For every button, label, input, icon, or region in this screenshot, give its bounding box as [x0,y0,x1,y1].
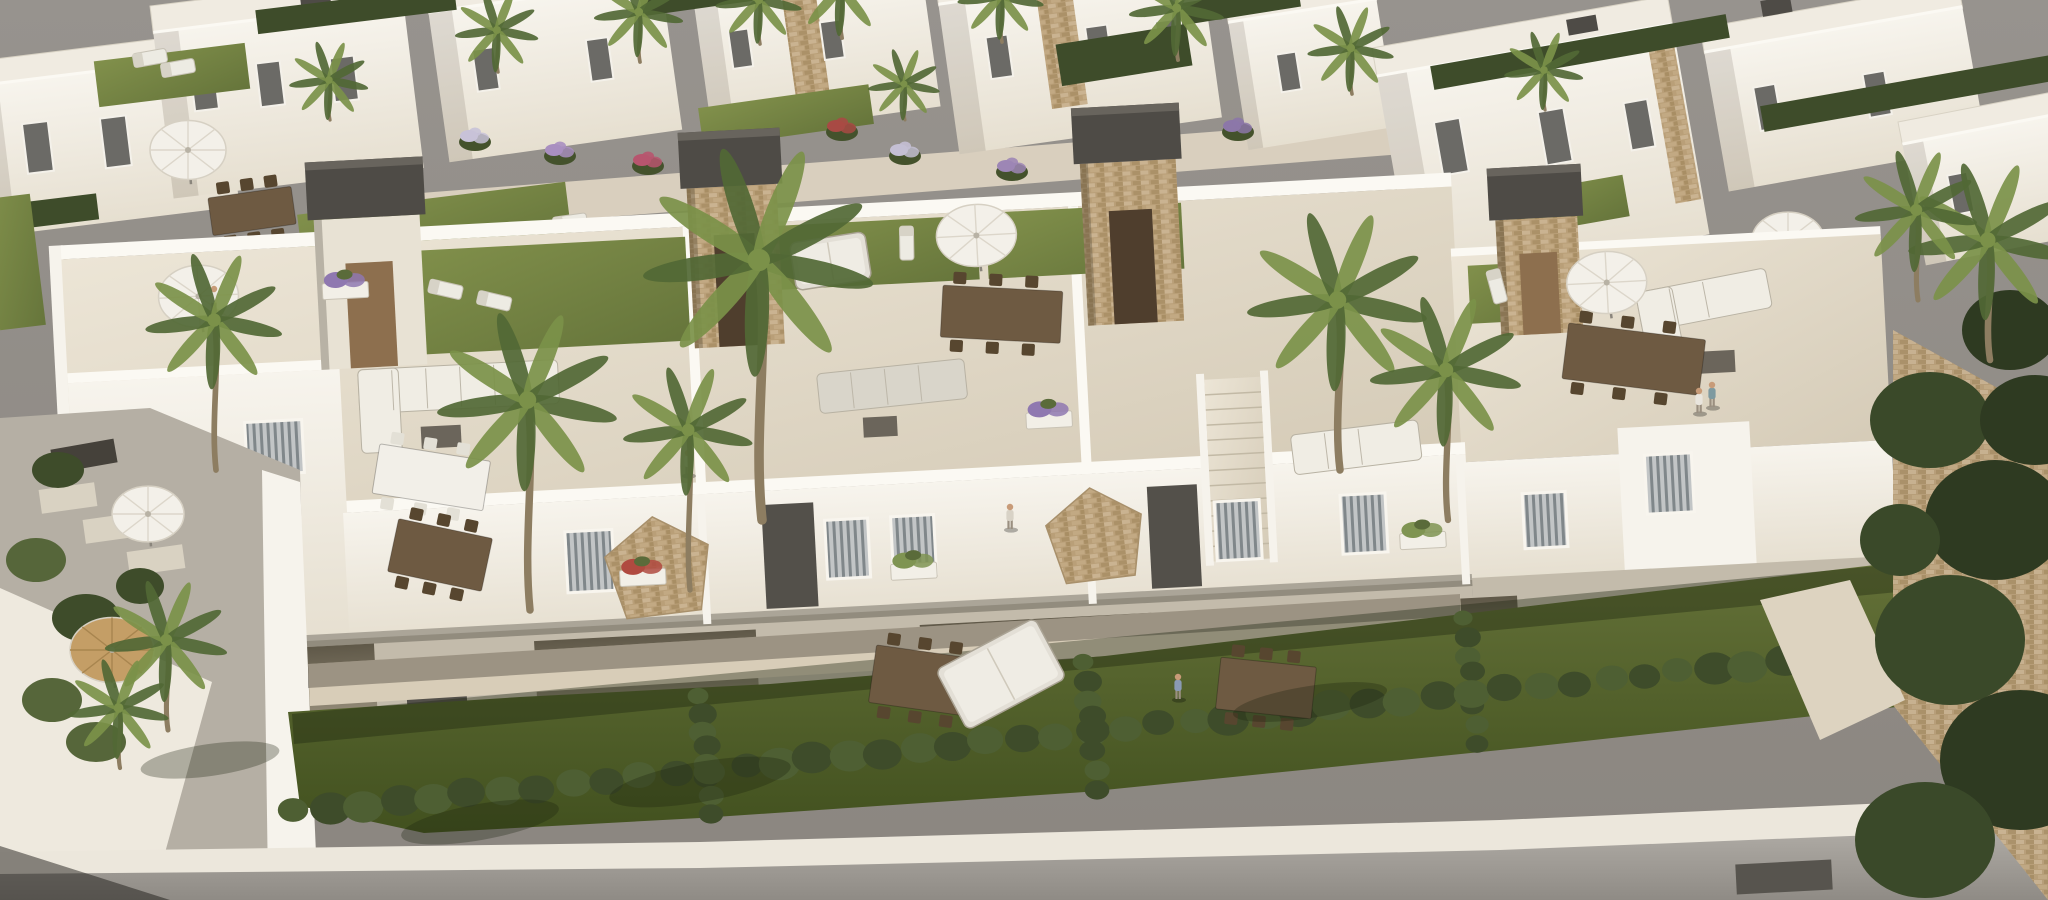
palm-crown [1910,204,1922,216]
palm-crown [634,8,643,17]
hedge-bush [1487,674,1522,701]
bush-bloom [899,142,911,151]
chair [918,637,933,651]
window-louvers [826,520,869,578]
hedge-bush [1085,760,1110,780]
parasol-hub [145,511,151,517]
person-leg [1011,520,1013,529]
palm-crown [1439,363,1454,378]
person-head [1175,674,1181,680]
hedge-bush [1466,715,1489,733]
hedge-bush [1073,654,1094,670]
person-leg [1179,690,1181,699]
shrub [32,452,84,488]
person-leg [1713,398,1715,407]
person-leg [1709,398,1711,407]
person-leg [1700,404,1702,413]
hedge-bush [1109,716,1142,742]
sun-lounger [899,226,914,260]
palm-crown [519,391,537,409]
lounger-back [899,226,913,236]
chair [985,341,999,354]
hedge-bush [1074,671,1102,693]
stair-tower [1487,164,1590,337]
chair [887,632,902,646]
hedge-bush [1421,681,1458,710]
person-torso [1708,388,1715,399]
person-head [1696,388,1702,394]
louver-window [1643,451,1696,516]
hedge-bush [967,726,1003,754]
hedge-bush [1466,735,1489,753]
chair [876,706,891,720]
stair-tower [1071,103,1190,326]
chair [949,641,964,655]
hedge-bush [934,732,971,761]
palm-crown [1329,291,1347,309]
person-head [1007,504,1013,510]
palm-crown [1172,3,1181,12]
palm-crown [493,26,501,34]
palm-crown [1347,44,1355,52]
person-torso [1174,680,1181,691]
chair [953,272,967,285]
villa-window [100,115,132,168]
chair [1621,315,1635,328]
person-leg [1175,690,1177,699]
hedge-bush [863,739,902,769]
bush-bloom [1232,118,1244,127]
person-torso [1006,510,1013,521]
hedge-bush [694,735,721,756]
chair [390,432,405,446]
chair [1662,321,1676,334]
hedge-bush [343,791,383,822]
window-louvers [1646,454,1693,512]
boundary-tree [1855,782,1995,898]
person-leg [1696,404,1698,413]
chair [950,340,964,353]
parked-object [1735,860,1832,895]
hedge-bush [1038,724,1072,751]
chair [239,178,254,192]
render-canvas [0,0,2048,900]
hedge-bush [1005,725,1040,753]
hedge-bush [518,775,554,803]
architectural-render [0,0,2048,900]
hedge-bush [1142,710,1174,735]
bush-bloom [1006,158,1018,167]
hedge-bush [1453,611,1472,626]
rooftop-lawn [387,237,690,356]
palm-crown [207,313,220,326]
hedge-bush [1629,664,1660,688]
villa-window [728,28,753,68]
hedge-bush [792,742,833,774]
chair [423,437,438,451]
glass-door [1147,484,1202,588]
window-louvers [1524,493,1567,547]
boundary-tree [1875,575,2025,705]
chair [989,274,1003,287]
chair [938,714,953,728]
hedge-bush [1525,673,1559,699]
window-louvers [1342,494,1387,552]
stair-tower [305,156,434,370]
coffee-table [863,416,898,438]
tower-doorway [1519,252,1561,335]
chair [1579,310,1593,323]
palm-crown [1980,232,1995,247]
louver-window [823,516,872,580]
bush-bloom [836,118,848,127]
tower-doorway [1109,209,1158,325]
hedge-bush [699,804,724,823]
palm-crown [325,76,333,84]
table-top [940,285,1063,343]
chair [1570,382,1584,395]
chair [1231,644,1245,657]
hedge-bush [1383,687,1420,716]
palm-crown [1540,66,1548,74]
palm-crown [682,424,695,437]
person-torso [1695,394,1702,405]
hedge-bush [1460,662,1485,681]
villa-window [256,61,285,108]
chair [216,181,231,195]
palm-crown [901,81,908,88]
hedge-bush [1085,780,1110,799]
window-louvers [1216,501,1261,559]
chair [263,174,278,188]
hedge-bush [447,778,485,807]
chair [456,442,471,456]
hedge-bush [1454,680,1490,708]
hedge-bush [1455,627,1481,647]
hedge-bush [1727,651,1767,682]
shrub [6,538,66,582]
person-leg [1007,520,1009,529]
hedge-bush [1076,717,1110,743]
palm-crown [160,634,172,646]
chair [1021,343,1035,356]
chair [1259,647,1273,660]
hedge-bush [1596,665,1628,690]
boundary-tree [1870,372,1990,468]
parasol-hub [185,147,191,153]
chair [1025,275,1039,288]
chair [1287,650,1301,663]
hedge-bush [556,769,591,796]
boundary-tree [1860,504,1940,576]
palm-crown [114,703,124,713]
bush-bloom [469,128,481,137]
bush-bloom [642,152,654,161]
chair [907,710,922,724]
louver-window [1521,490,1570,550]
glass-door [761,502,818,609]
palm-crown [748,249,770,271]
louver-window [1213,498,1264,562]
hedge-bush [1180,709,1211,733]
villa-window [985,34,1013,79]
bush-bloom [554,142,566,151]
person-head [1709,382,1715,388]
hedge-bush [688,688,709,704]
chair [1612,387,1626,400]
chair [380,497,395,511]
hedge-bush [414,784,453,814]
hedge-bush [901,733,939,763]
hedge-bush [1558,672,1591,698]
chair [1653,392,1667,405]
hedge-bush [1662,658,1692,682]
louver-window [1338,491,1389,555]
villa-window [22,121,54,174]
hedge-bush [278,798,308,822]
